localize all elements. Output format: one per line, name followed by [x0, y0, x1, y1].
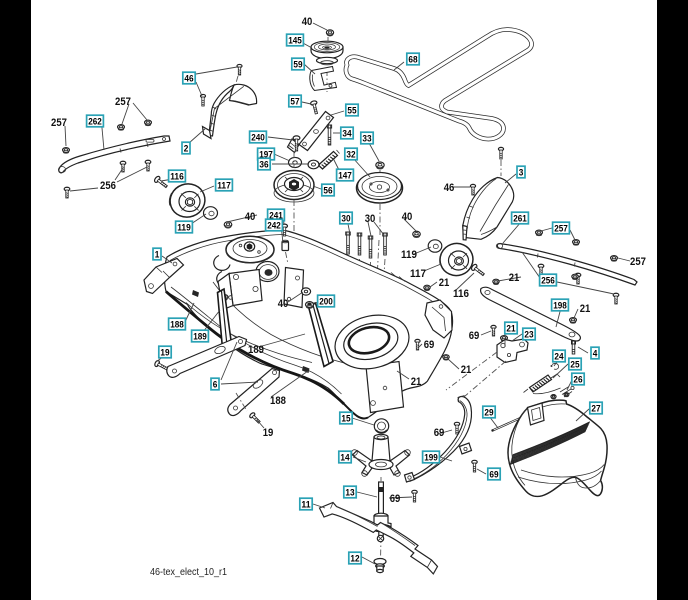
svg-text:69: 69 [424, 339, 435, 351]
svg-text:69: 69 [390, 493, 401, 505]
svg-text:69: 69 [434, 427, 445, 439]
svg-text:6: 6 [213, 379, 218, 390]
svg-text:257: 257 [630, 256, 646, 268]
svg-text:145: 145 [288, 35, 302, 46]
svg-text:3: 3 [519, 167, 524, 178]
svg-text:68: 68 [408, 54, 417, 65]
svg-text:26: 26 [573, 374, 582, 385]
svg-text:36: 36 [259, 159, 268, 170]
svg-text:256: 256 [100, 180, 116, 192]
svg-text:40: 40 [245, 211, 256, 223]
svg-text:30: 30 [341, 213, 350, 224]
svg-text:240: 240 [251, 132, 265, 143]
svg-text:19: 19 [160, 347, 169, 358]
svg-text:59: 59 [293, 59, 302, 70]
svg-text:189: 189 [193, 331, 207, 342]
svg-text:188: 188 [170, 319, 184, 330]
svg-text:19: 19 [263, 427, 274, 439]
svg-text:188: 188 [270, 395, 286, 407]
svg-text:21: 21 [411, 376, 422, 388]
svg-text:21: 21 [439, 277, 450, 289]
svg-text:15: 15 [341, 413, 351, 424]
svg-text:46: 46 [444, 182, 455, 194]
svg-text:261: 261 [513, 213, 527, 224]
svg-text:46: 46 [184, 73, 193, 84]
svg-text:257: 257 [554, 223, 568, 234]
svg-text:55: 55 [347, 105, 357, 116]
svg-text:32: 32 [346, 149, 355, 160]
svg-text:21: 21 [509, 272, 520, 284]
svg-text:27: 27 [591, 403, 600, 414]
svg-text:21: 21 [506, 323, 516, 334]
svg-text:29: 29 [484, 407, 493, 418]
svg-text:11: 11 [301, 499, 311, 510]
svg-text:2: 2 [184, 143, 189, 154]
svg-text:257: 257 [51, 117, 67, 129]
svg-text:198: 198 [553, 300, 567, 311]
svg-text:262: 262 [88, 116, 102, 127]
svg-text:69: 69 [469, 330, 480, 342]
svg-text:189: 189 [248, 344, 264, 356]
svg-text:4: 4 [593, 348, 598, 359]
svg-text:24: 24 [554, 351, 564, 362]
svg-text:40: 40 [402, 211, 413, 223]
svg-text:200: 200 [319, 296, 333, 307]
svg-text:117: 117 [410, 268, 426, 280]
svg-text:13: 13 [345, 487, 354, 498]
svg-text:40: 40 [278, 298, 289, 310]
svg-text:30: 30 [365, 213, 376, 225]
svg-text:119: 119 [177, 222, 191, 233]
svg-text:256: 256 [541, 275, 555, 286]
svg-text:56: 56 [323, 185, 332, 196]
svg-text:69: 69 [489, 469, 498, 480]
svg-text:199: 199 [424, 452, 438, 463]
svg-text:46-tex_elect_10_r1: 46-tex_elect_10_r1 [150, 567, 227, 578]
svg-text:57: 57 [290, 96, 299, 107]
svg-text:40: 40 [302, 16, 313, 28]
svg-text:12: 12 [350, 553, 359, 564]
svg-text:21: 21 [461, 364, 472, 376]
svg-text:14: 14 [340, 452, 350, 463]
svg-text:21: 21 [580, 303, 591, 315]
svg-text:34: 34 [342, 128, 352, 139]
svg-text:1: 1 [155, 249, 160, 260]
svg-text:257: 257 [115, 96, 131, 108]
svg-text:25: 25 [570, 359, 580, 370]
svg-text:147: 147 [338, 170, 352, 181]
svg-text:119: 119 [401, 249, 417, 261]
svg-text:116: 116 [453, 288, 469, 300]
svg-text:242: 242 [267, 220, 281, 231]
svg-text:117: 117 [217, 180, 231, 191]
svg-text:116: 116 [170, 171, 184, 182]
svg-text:23: 23 [524, 329, 533, 340]
svg-text:33: 33 [362, 133, 371, 144]
